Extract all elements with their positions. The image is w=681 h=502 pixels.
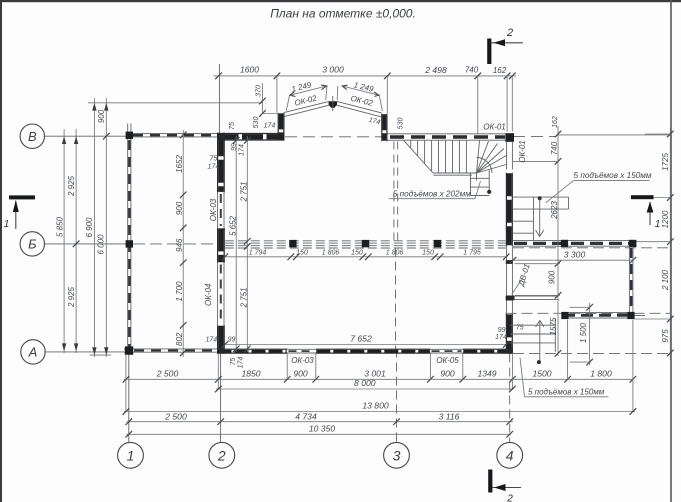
svg-text:900: 900 xyxy=(97,109,106,123)
svg-text:2: 2 xyxy=(506,27,513,39)
svg-text:ОК-03: ОК-03 xyxy=(291,356,314,365)
svg-text:ОК-01: ОК-01 xyxy=(483,123,506,132)
svg-text:174: 174 xyxy=(238,357,245,369)
svg-text:1500: 1500 xyxy=(532,368,551,378)
svg-text:1725: 1725 xyxy=(661,153,670,171)
svg-text:900: 900 xyxy=(293,368,308,378)
svg-text:174: 174 xyxy=(264,123,276,130)
svg-text:1349: 1349 xyxy=(477,368,496,378)
svg-text:975: 975 xyxy=(661,329,670,343)
svg-text:174: 174 xyxy=(238,144,245,156)
svg-text:10 350: 10 350 xyxy=(309,423,336,433)
svg-text:5 подъёмов x 150мм: 5 подъёмов x 150мм xyxy=(574,171,652,180)
svg-text:174: 174 xyxy=(208,164,220,171)
svg-text:5 652: 5 652 xyxy=(229,215,238,236)
svg-text:2 100: 2 100 xyxy=(661,269,670,291)
svg-text:1: 1 xyxy=(655,219,661,230)
svg-text:4 734: 4 734 xyxy=(295,412,317,422)
svg-text:1600: 1600 xyxy=(240,65,259,75)
svg-text:2 751: 2 751 xyxy=(239,181,248,202)
svg-text:ОК-04: ОК-04 xyxy=(204,283,213,306)
svg-text:1652: 1652 xyxy=(175,155,184,173)
svg-text:3: 3 xyxy=(393,447,401,463)
svg-text:13 800: 13 800 xyxy=(362,400,389,410)
svg-text:2 751: 2 751 xyxy=(239,287,248,308)
svg-text:75: 75 xyxy=(230,358,237,366)
svg-text:174: 174 xyxy=(495,334,507,341)
svg-text:370: 370 xyxy=(256,85,263,97)
svg-text:99: 99 xyxy=(228,336,236,343)
svg-text:150: 150 xyxy=(351,249,363,256)
svg-text:1: 1 xyxy=(127,447,135,463)
svg-text:1850: 1850 xyxy=(241,368,260,378)
svg-text:1 500: 1 500 xyxy=(579,322,588,343)
svg-text:900: 900 xyxy=(440,368,455,378)
svg-text:2: 2 xyxy=(217,447,226,463)
svg-text:1575: 1575 xyxy=(549,317,558,335)
svg-text:1 700: 1 700 xyxy=(175,281,184,302)
svg-text:5 подъёмов x 150мм: 5 подъёмов x 150мм xyxy=(528,388,605,397)
svg-text:7 652: 7 652 xyxy=(350,334,372,344)
svg-text:740: 740 xyxy=(465,66,479,75)
svg-text:Б: Б xyxy=(28,237,37,252)
svg-text:ОК-05: ОК-05 xyxy=(436,356,459,365)
svg-text:2: 2 xyxy=(506,494,513,502)
svg-text:530: 530 xyxy=(397,118,404,130)
svg-text:1 795: 1 795 xyxy=(463,249,481,256)
svg-text:1: 1 xyxy=(4,219,10,230)
svg-text:802: 802 xyxy=(175,332,184,346)
svg-text:900: 900 xyxy=(547,270,556,284)
svg-text:150: 150 xyxy=(296,249,308,256)
svg-text:162: 162 xyxy=(552,116,559,128)
svg-text:2 500: 2 500 xyxy=(164,412,187,422)
svg-text:1 806: 1 806 xyxy=(322,249,340,256)
svg-text:3 000: 3 000 xyxy=(322,65,344,75)
svg-text:4: 4 xyxy=(506,447,514,463)
svg-text:ОК-01: ОК-01 xyxy=(518,140,527,163)
svg-text:5 850: 5 850 xyxy=(56,216,65,237)
svg-text:75: 75 xyxy=(516,324,524,331)
svg-text:1 794: 1 794 xyxy=(249,249,267,256)
svg-text:1 800: 1 800 xyxy=(590,368,612,378)
svg-text:900: 900 xyxy=(175,201,184,215)
svg-text:2 925: 2 925 xyxy=(67,286,76,308)
svg-text:3 116: 3 116 xyxy=(439,412,460,422)
svg-text:150: 150 xyxy=(422,249,434,256)
svg-text:5 подъёмов x 202мм: 5 подъёмов x 202мм xyxy=(393,189,471,198)
svg-text:1 806: 1 806 xyxy=(386,249,404,256)
svg-text:2 498: 2 498 xyxy=(424,65,447,75)
svg-text:530: 530 xyxy=(253,117,260,129)
svg-text:740: 740 xyxy=(550,141,559,155)
svg-text:ОК-03: ОК-03 xyxy=(209,198,218,221)
svg-text:162: 162 xyxy=(493,66,507,75)
svg-text:75: 75 xyxy=(229,122,236,130)
svg-text:3 300: 3 300 xyxy=(564,249,586,259)
svg-text:75: 75 xyxy=(210,156,218,163)
svg-text:6 000: 6 000 xyxy=(96,234,105,255)
svg-text:3 001: 3 001 xyxy=(364,368,386,378)
svg-text:План на отметке ±0,000.: План на отметке ±0,000. xyxy=(270,7,416,21)
svg-text:А: А xyxy=(28,345,38,360)
svg-text:946: 946 xyxy=(175,238,184,252)
svg-text:2623: 2623 xyxy=(550,201,559,220)
svg-text:2 500: 2 500 xyxy=(156,368,179,378)
svg-text:В: В xyxy=(28,129,37,144)
svg-text:2 925: 2 925 xyxy=(67,175,76,197)
svg-text:99: 99 xyxy=(231,143,238,151)
svg-text:174: 174 xyxy=(205,336,217,343)
svg-text:8 000: 8 000 xyxy=(354,378,376,388)
svg-text:6 900: 6 900 xyxy=(85,217,94,238)
svg-text:1200: 1200 xyxy=(661,210,670,228)
